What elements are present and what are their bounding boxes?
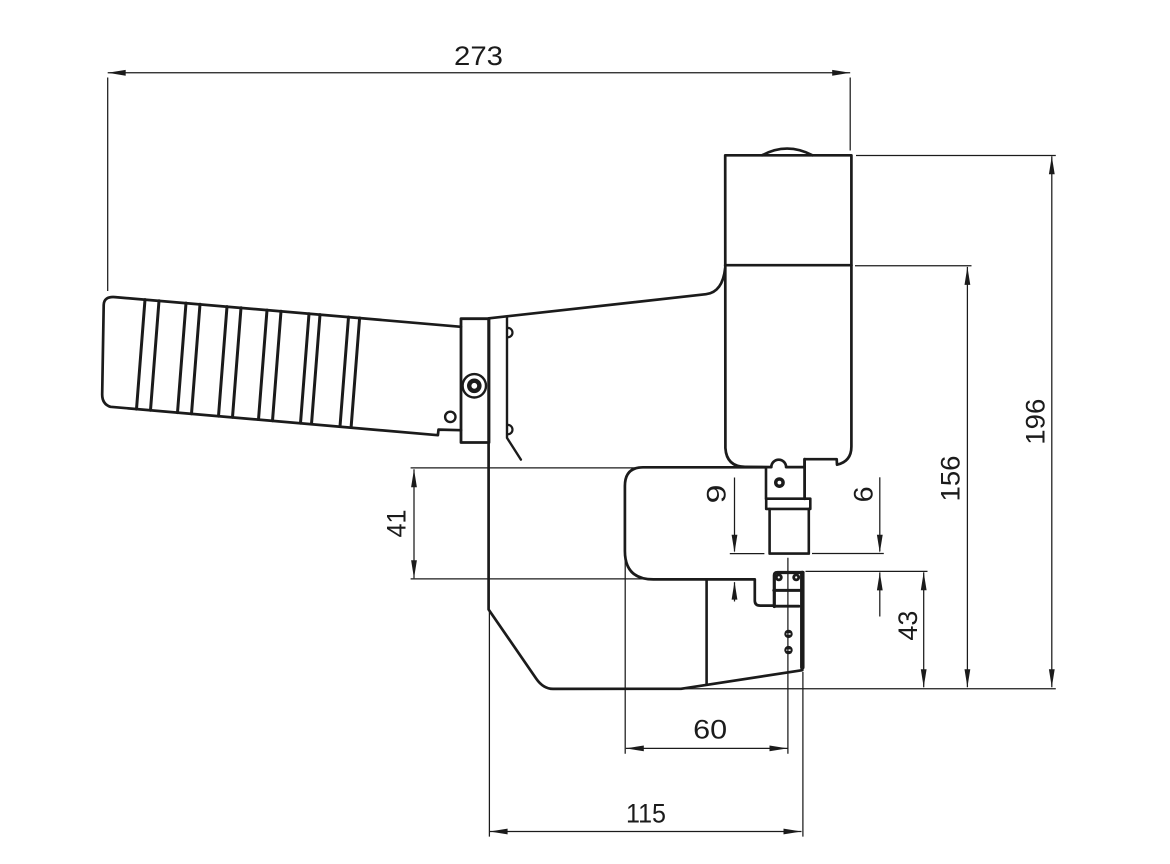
svg-text:196: 196 — [1021, 399, 1051, 445]
svg-text:41: 41 — [381, 510, 411, 538]
svg-text:60: 60 — [693, 715, 727, 745]
svg-text:6: 6 — [848, 486, 878, 502]
svg-text:43: 43 — [893, 611, 923, 641]
svg-text:9: 9 — [702, 485, 732, 504]
svg-text:273: 273 — [454, 41, 503, 71]
svg-text:115: 115 — [626, 799, 666, 829]
svg-text:156: 156 — [936, 456, 966, 502]
